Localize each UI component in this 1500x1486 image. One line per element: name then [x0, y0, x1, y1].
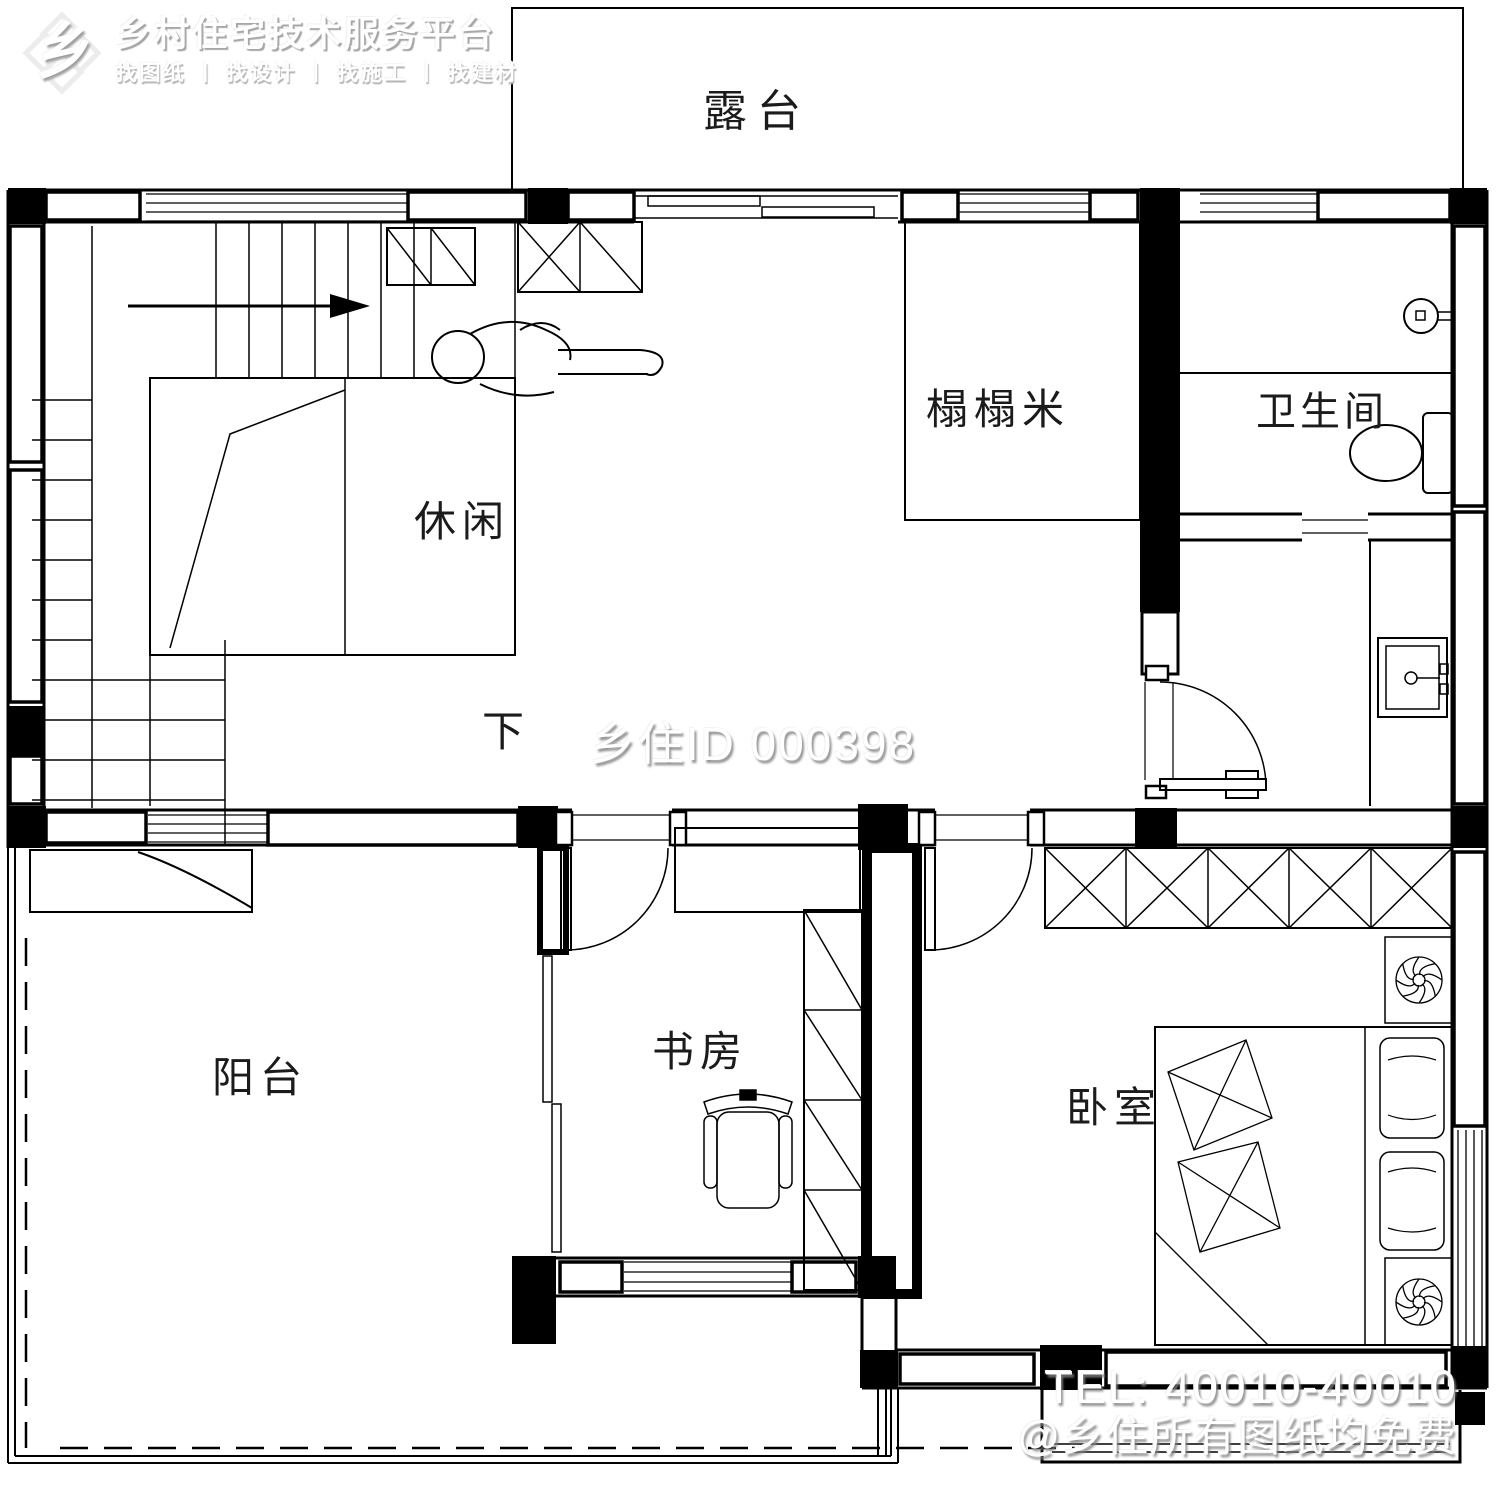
tel-watermark: TEL: 40010-40010	[1045, 1364, 1458, 1410]
bedroom-furniture	[1155, 937, 1452, 1345]
room-label-leisure: 休闲	[414, 501, 510, 543]
fan-swirl-icon	[1385, 937, 1452, 1023]
chair-icon	[704, 1090, 792, 1208]
logo-subtitle: 找图纸 丨 找设计 丨 找施工 丨 找建材	[116, 63, 519, 84]
fan-swirl-icon	[1385, 1258, 1452, 1345]
bed-icon	[1155, 1027, 1452, 1345]
corridor-door-swing-icon	[1160, 682, 1266, 798]
window-glazing-lines	[146, 194, 1482, 1346]
terrace-outline	[512, 8, 1463, 190]
tatami-mat-outline	[905, 222, 1140, 520]
site-logo: 乡 乡村住宅技术服务平台 找图纸 丨 找设计 丨 找施工 丨 找建材	[26, 16, 519, 102]
room-label-study: 书房	[652, 1031, 748, 1073]
bookshelf-icon	[804, 910, 862, 1290]
hall-cabinet-icon	[387, 228, 475, 285]
balcony-drain-icon	[30, 850, 252, 912]
room-label-terrace: 露台	[703, 90, 811, 134]
terrace-sliding-door-icon	[634, 196, 898, 218]
logo-diamond-icon: 乡	[26, 16, 100, 102]
floorplan-page: 乡 乡村住宅技术服务平台 找图纸 丨 找设计 丨 找施工 丨 找建材 露台 榻榻…	[0, 0, 1500, 1486]
balcony-sliding-door-icon	[543, 956, 561, 1252]
room-label-bedroom: 卧室	[1066, 1087, 1162, 1129]
wardrobe-icon	[1045, 848, 1452, 928]
bedroom-door-swing-icon	[925, 848, 1032, 950]
study-door-swing-icon	[561, 848, 668, 950]
room-label-tatami: 榻榻米	[926, 389, 1070, 431]
room-label-balcony: 阳台	[212, 1057, 308, 1099]
room-label-bathroom: 卫生间	[1256, 392, 1388, 432]
person-figure-icon	[432, 322, 663, 396]
desk-icon	[675, 828, 860, 912]
bathroom-fixtures	[1350, 299, 1453, 717]
logo-title: 乡村住宅技术服务平台	[116, 16, 519, 55]
center-id-watermark: 乡住ID 000398	[590, 721, 916, 767]
logo-glyph: 乡	[36, 18, 93, 85]
sink-icon	[1378, 638, 1448, 717]
shower-head-icon	[1404, 299, 1452, 333]
study-furniture	[675, 828, 860, 1208]
stairs-down-label: 下	[482, 711, 530, 753]
throw-pillows-icon	[1168, 1040, 1280, 1252]
terrace-cabinet-icon	[518, 222, 642, 292]
stair-break-line	[170, 390, 345, 648]
free-note-watermark: @乡住所有图纸均免费	[1017, 1416, 1458, 1458]
